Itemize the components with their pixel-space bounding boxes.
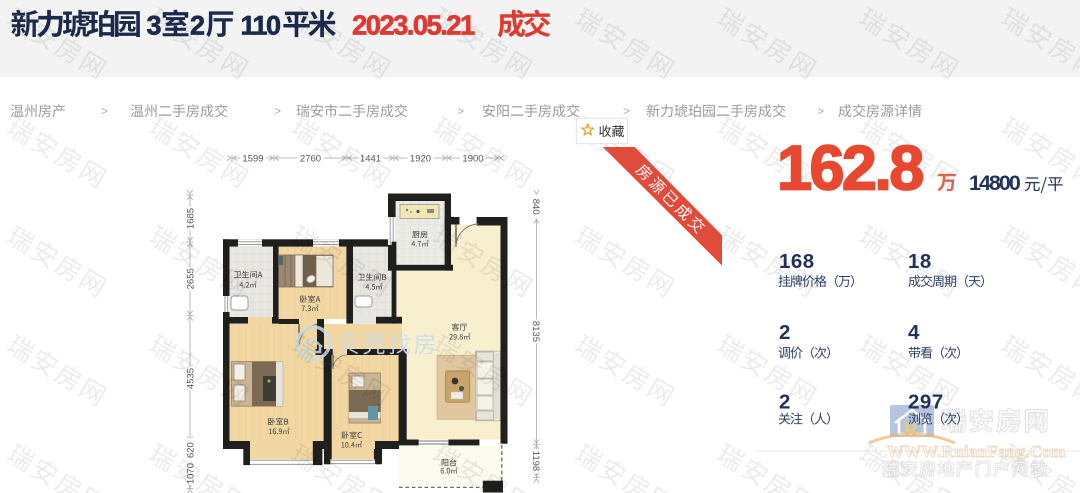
svg-text:2: 2 [779,391,790,414]
svg-text:>: > [101,104,108,118]
svg-text:1198: 1198 [530,451,541,471]
svg-text:1920: 1920 [410,154,431,165]
svg-text:14800: 14800 [969,171,1021,195]
svg-text:>: > [457,104,464,118]
svg-text:8135: 8135 [530,321,541,342]
svg-text:3: 3 [147,11,162,41]
svg-text:162.8: 162.8 [777,134,923,204]
svg-text:>: > [623,104,630,118]
svg-text:840: 840 [530,199,541,215]
svg-text:>: > [274,104,281,118]
svg-text:2023.05.21: 2023.05.21 [352,10,475,41]
svg-text:2655: 2655 [185,268,196,289]
svg-text:4: 4 [908,321,920,344]
svg-text:2760: 2760 [300,154,321,165]
svg-text:18: 18 [908,250,932,273]
svg-text:WWW.RuianFang.Com: WWW.RuianFang.Com [887,442,1066,461]
svg-text:297: 297 [908,391,944,414]
svg-text:168: 168 [779,250,815,273]
svg-text:1685: 1685 [185,208,196,229]
svg-text:1599: 1599 [242,154,263,165]
svg-text:>: > [817,104,824,118]
svg-text:2: 2 [190,11,205,41]
svg-text:110: 110 [241,11,281,41]
svg-text:2: 2 [779,321,790,344]
svg-text:620: 620 [185,442,196,458]
